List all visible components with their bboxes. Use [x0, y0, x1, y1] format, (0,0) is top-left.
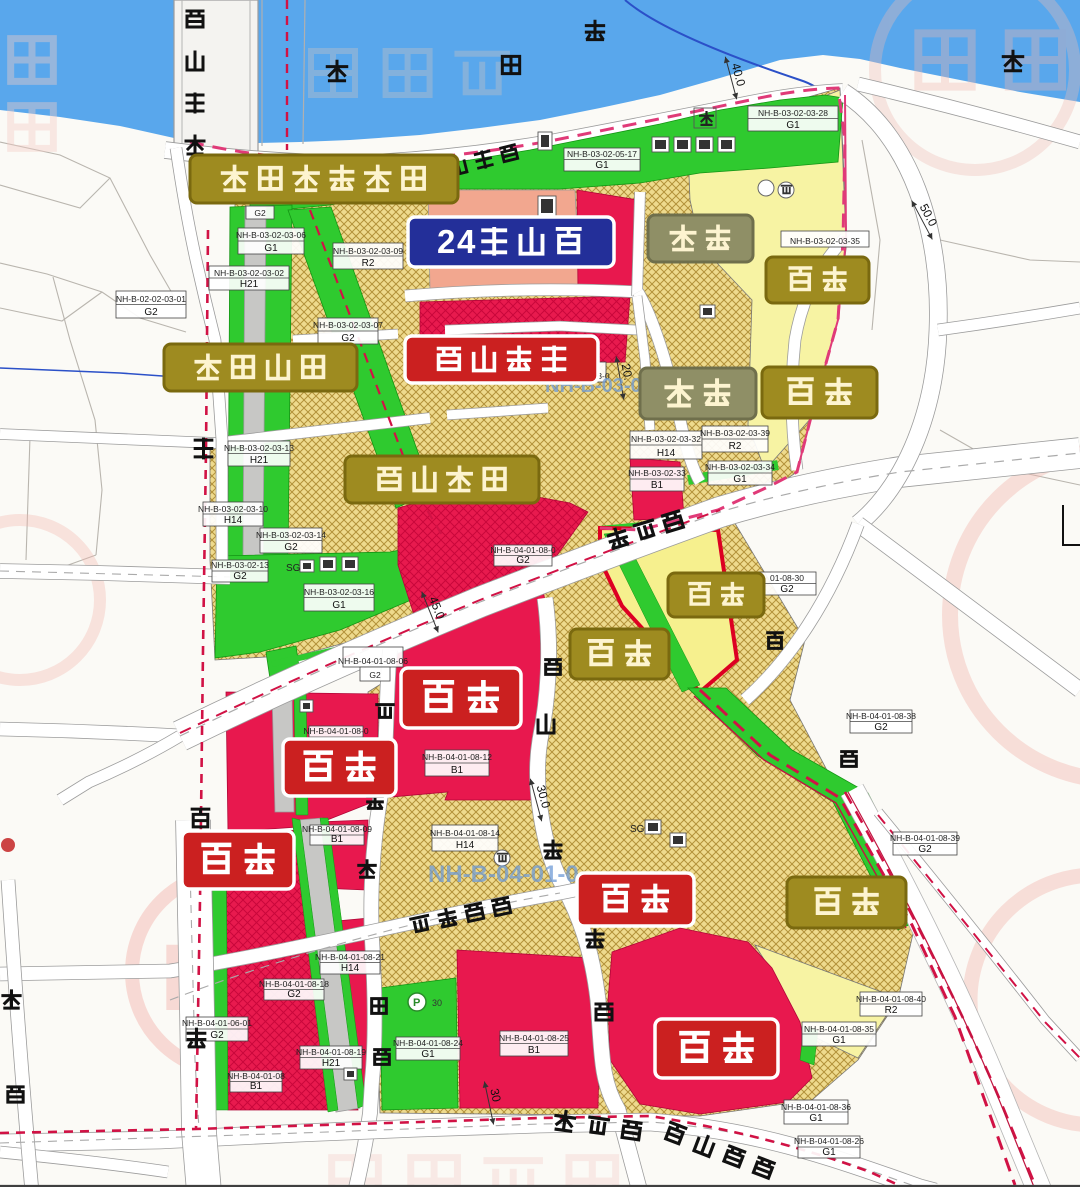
svg-text:NH-B-03-02-03-32: NH-B-03-02-03-32: [631, 434, 701, 444]
svg-text:NH-B-03-02-03-13: NH-B-03-02-03-13: [224, 443, 294, 453]
svg-text:H21: H21: [322, 1058, 341, 1069]
svg-text:NH-B-03-02-33: NH-B-03-02-33: [628, 468, 686, 478]
svg-text:NH-B-04-01-08-24: NH-B-04-01-08-24: [393, 1038, 463, 1048]
svg-text:P: P: [413, 997, 420, 1009]
svg-text:SG: SG: [286, 563, 301, 574]
svg-text:R2: R2: [885, 1005, 898, 1016]
svg-text:NH-B-04-01-0: NH-B-04-01-0: [428, 861, 579, 888]
svg-text:4: 4: [457, 223, 476, 260]
svg-text:B1: B1: [451, 765, 464, 776]
svg-text:NH-B-03-02-03-28: NH-B-03-02-03-28: [758, 108, 828, 118]
svg-text:G1: G1: [421, 1049, 435, 1060]
svg-text:R2: R2: [729, 441, 742, 452]
svg-text:NH-B-04-01-08-09: NH-B-04-01-08-09: [302, 824, 372, 834]
svg-text:NH-B-03-02-03-10: NH-B-03-02-03-10: [198, 504, 268, 514]
svg-text:NH-B-03-02-13: NH-B-03-02-13: [211, 560, 269, 570]
svg-text:H21: H21: [250, 455, 269, 466]
svg-text:B1: B1: [651, 480, 664, 491]
svg-text:G2: G2: [918, 844, 932, 855]
svg-text:G1: G1: [595, 160, 609, 171]
svg-text:NH-B-03-02-03-39: NH-B-03-02-03-39: [700, 428, 770, 438]
svg-text:NH-B-04-01-08-25: NH-B-04-01-08-25: [499, 1033, 569, 1043]
svg-text:01-08-30: 01-08-30: [770, 573, 804, 583]
svg-text:NH-B-03-02-03-02: NH-B-03-02-03-02: [214, 268, 284, 278]
svg-text:NH-B-04-01-08-35: NH-B-04-01-08-35: [804, 1024, 874, 1034]
svg-text:NH-B-04-01-08-18: NH-B-04-01-08-18: [259, 979, 329, 989]
svg-text:NH-B-04-01-08-26: NH-B-04-01-08-26: [794, 1136, 864, 1146]
svg-text:R2: R2: [362, 258, 375, 269]
svg-text:B1: B1: [528, 1045, 541, 1056]
svg-text:NH-B-04-01-06-01: NH-B-04-01-06-01: [182, 1018, 252, 1028]
svg-text:G2: G2: [254, 208, 266, 218]
svg-text:H14: H14: [224, 515, 243, 526]
svg-text:H14: H14: [657, 448, 676, 459]
svg-text:NH-B-04-01-08-12: NH-B-04-01-08-12: [422, 752, 492, 762]
svg-text:NH-B-03-02-03-09: NH-B-03-02-03-09: [333, 246, 403, 256]
svg-text:G1: G1: [733, 474, 747, 485]
svg-text:G1: G1: [786, 120, 800, 131]
svg-text:G1: G1: [809, 1113, 823, 1124]
svg-text:G2: G2: [780, 584, 794, 595]
svg-text:G2: G2: [874, 722, 888, 733]
svg-text:NH-B-04-01-08: NH-B-04-01-08: [227, 1071, 285, 1081]
svg-text:G2: G2: [369, 670, 381, 680]
svg-text:30: 30: [432, 998, 442, 1008]
svg-text:G1: G1: [332, 600, 346, 611]
svg-text:G2: G2: [516, 555, 530, 566]
svg-text:B1: B1: [250, 1081, 263, 1092]
svg-text:G2: G2: [287, 989, 301, 1000]
svg-text:G1: G1: [822, 1147, 836, 1158]
svg-text:G2: G2: [144, 307, 158, 318]
svg-text:NH-B-04-01-08-14: NH-B-04-01-08-14: [430, 828, 500, 838]
svg-text:B1: B1: [331, 834, 344, 845]
svg-text:NH-B-03-02-03-07: NH-B-03-02-03-07: [313, 320, 383, 330]
svg-text:NH-B-04-01-08-0: NH-B-04-01-08-0: [490, 545, 555, 555]
svg-text:2: 2: [437, 223, 455, 260]
svg-text:NH-B-03-02-03-06: NH-B-03-02-03-06: [236, 230, 306, 240]
svg-text:G1: G1: [264, 243, 278, 254]
svg-text:H14: H14: [456, 840, 475, 851]
svg-text:NH-B-03-02-03-34: NH-B-03-02-03-34: [705, 462, 775, 472]
svg-text:NH-B-03-02-05-17: NH-B-03-02-05-17: [567, 149, 637, 159]
svg-text:G2: G2: [233, 571, 247, 582]
svg-text:NH-B-04-01-08-19: NH-B-04-01-08-19: [296, 1047, 366, 1057]
svg-text:G2: G2: [210, 1030, 224, 1041]
svg-text:H21: H21: [240, 279, 259, 290]
svg-text:G1: G1: [832, 1035, 846, 1046]
svg-text:NH-B-03-02-03-14: NH-B-03-02-03-14: [256, 530, 326, 540]
svg-text:G2: G2: [284, 542, 298, 553]
svg-text:NH-B-04-01-08-40: NH-B-04-01-08-40: [856, 994, 926, 1004]
svg-text:NH-B-04-01-08-39: NH-B-04-01-08-39: [890, 833, 960, 843]
svg-text:NH-B-03-02-03-16: NH-B-03-02-03-16: [304, 587, 374, 597]
svg-text:SG: SG: [630, 824, 645, 835]
svg-text:NH-B-04-01-08-36: NH-B-04-01-08-36: [781, 1102, 851, 1112]
svg-text:NH-B-04-01-08-38: NH-B-04-01-08-38: [846, 711, 916, 721]
svg-text:NH-B-04-01-08-0: NH-B-04-01-08-0: [303, 726, 368, 736]
svg-text:H14: H14: [341, 963, 360, 974]
svg-text:G2: G2: [341, 333, 355, 344]
svg-text:NH-B-02-02-03-01: NH-B-02-02-03-01: [116, 294, 186, 304]
svg-text:NH-B-04-01-08-06: NH-B-04-01-08-06: [338, 656, 408, 666]
svg-text:NH-B-04-01-08-21: NH-B-04-01-08-21: [315, 952, 385, 962]
svg-text:NH-B-03-02-03-35: NH-B-03-02-03-35: [790, 236, 860, 246]
